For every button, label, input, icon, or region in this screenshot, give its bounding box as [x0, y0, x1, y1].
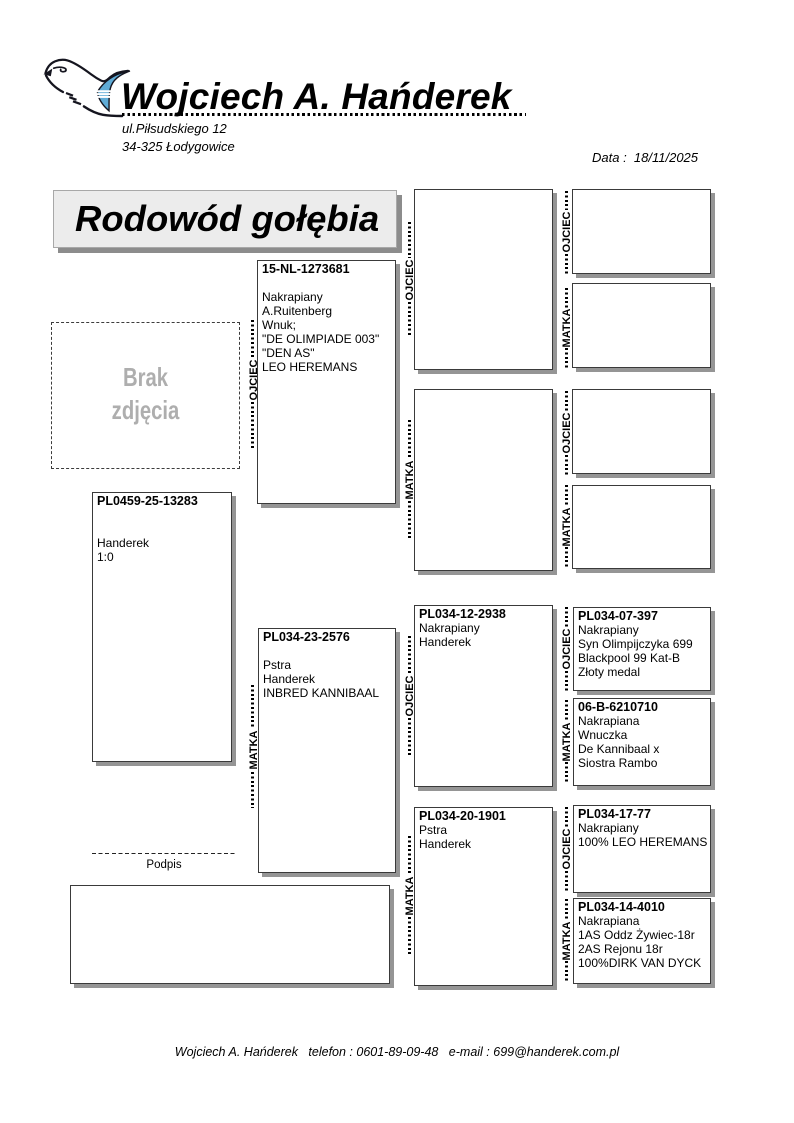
svg-text:MATKA: MATKA [561, 308, 573, 347]
svg-text:OJCIEC: OJCIEC [248, 359, 260, 400]
svg-text:OJCIEC: OJCIEC [404, 259, 416, 300]
svg-text:MATKA: MATKA [561, 722, 573, 761]
svg-text:OJCIEC: OJCIEC [561, 628, 573, 669]
svg-text:MATKA: MATKA [561, 921, 573, 960]
svg-text:OJCIEC: OJCIEC [404, 675, 416, 716]
svg-text:OJCIEC: OJCIEC [561, 828, 573, 869]
svg-text:MATKA: MATKA [561, 507, 573, 546]
svg-text:OJCIEC: OJCIEC [561, 211, 573, 252]
svg-text:MATKA: MATKA [248, 730, 260, 769]
svg-text:OJCIEC: OJCIEC [561, 412, 573, 453]
svg-text:MATKA: MATKA [404, 876, 416, 915]
svg-text:MATKA: MATKA [404, 460, 416, 499]
